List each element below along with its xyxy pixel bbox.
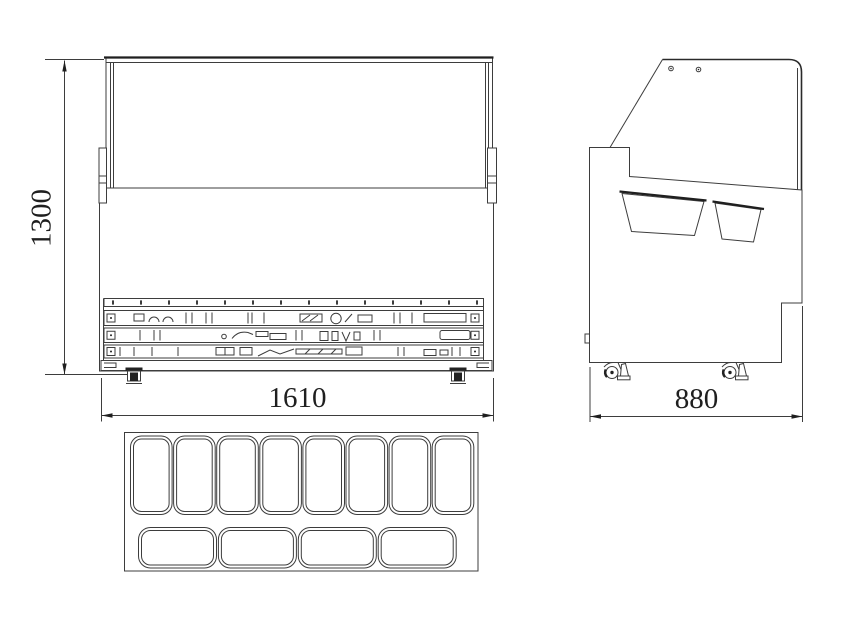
food-pan: [432, 436, 474, 515]
width-dimension: 1610: [102, 378, 494, 422]
front-glass-panel: [104, 58, 494, 189]
glass-pane: [106, 58, 493, 189]
side-left-fitting: [585, 334, 590, 343]
caster-front-left: [126, 368, 143, 384]
top-view: [125, 433, 479, 572]
arrowhead-right: [483, 413, 494, 417]
screw-dot: [474, 334, 476, 336]
screw-dot: [474, 351, 476, 353]
arrowhead-up: [62, 61, 66, 72]
arrowhead-left: [102, 413, 113, 417]
screw-hole-dot: [670, 68, 672, 70]
screw-dot: [110, 334, 112, 336]
louver-slat-2: [104, 328, 484, 343]
base-rail: [101, 361, 492, 371]
glass-outline: [663, 60, 802, 190]
louver-slat-1: [104, 311, 484, 326]
depth-dimension-label: 880: [675, 383, 719, 415]
screw-dot: [474, 317, 476, 319]
drawing-canvas: 1300 1610: [0, 0, 862, 627]
width-dimension-label: 1610: [269, 382, 327, 414]
hinge-bracket-right: [488, 148, 497, 203]
perforated-strip: [104, 299, 484, 307]
food-pan: [346, 436, 388, 515]
cabinet-body: [100, 188, 494, 371]
side-view: [585, 60, 802, 380]
arrowhead-right: [792, 414, 803, 418]
louver-slat-3: [104, 345, 484, 358]
side-body-profile: [590, 148, 803, 363]
food-pan: [298, 528, 376, 569]
height-dimension-label: 1300: [26, 189, 58, 247]
caster-front-right: [450, 368, 467, 384]
food-pan: [378, 528, 456, 569]
side-glass-panel: [610, 60, 802, 190]
food-pan: [131, 436, 173, 515]
side-food-pan-large: [620, 192, 707, 236]
caster-side-rear: [722, 363, 748, 380]
screw-hole-dot: [698, 69, 700, 71]
food-pan: [217, 436, 259, 515]
glass-front-slant: [610, 60, 663, 148]
hinge-bracket-left: [99, 148, 107, 203]
technical-drawing-page: 1300 1610: [0, 0, 862, 627]
food-pan: [260, 436, 302, 515]
arrowhead-down: [62, 364, 66, 375]
food-pan: [389, 436, 431, 515]
front-view: [99, 58, 497, 384]
screw-dot: [110, 317, 112, 319]
arrowhead-left: [590, 414, 601, 418]
food-pan: [139, 528, 217, 569]
screw-dot: [110, 351, 112, 353]
caster-side-front: [604, 363, 630, 380]
food-pan: [303, 436, 345, 515]
food-pan: [174, 436, 216, 515]
food-pan: [218, 528, 296, 569]
